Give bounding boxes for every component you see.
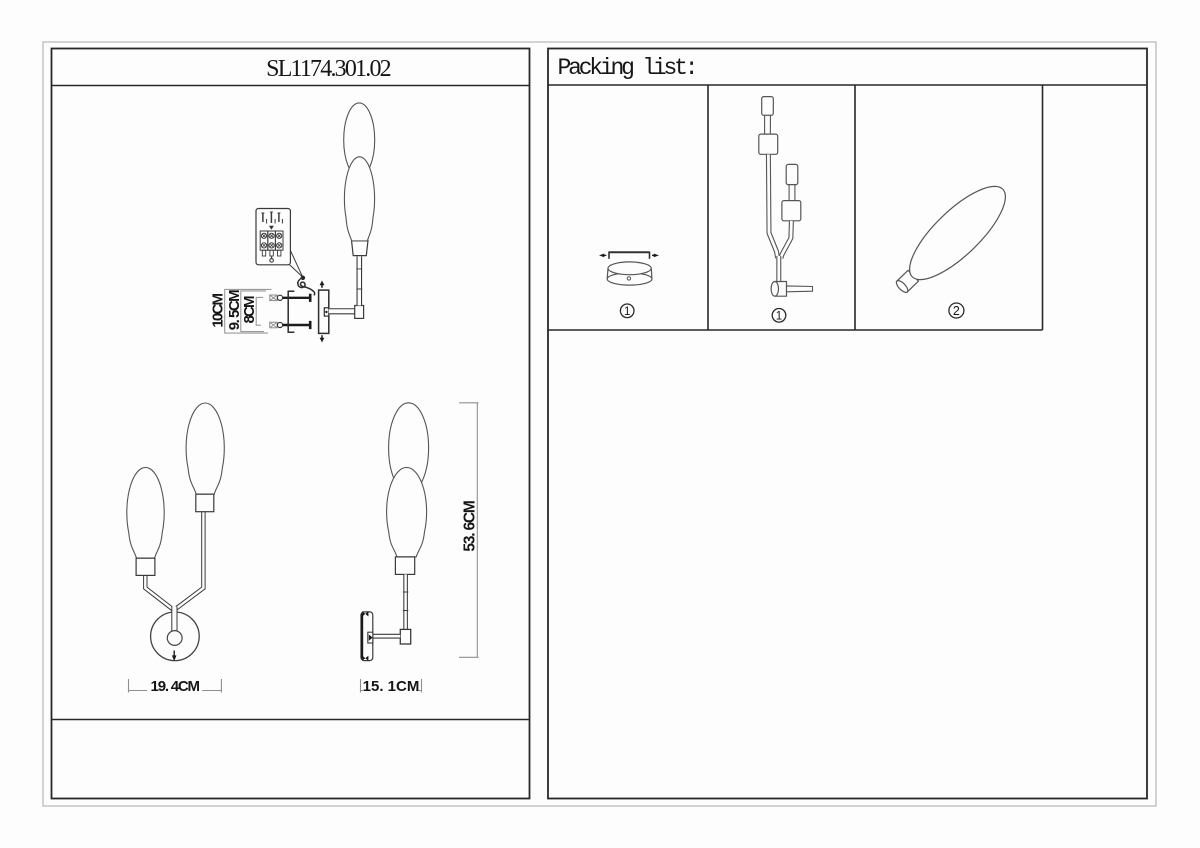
- svg-text:8CM: 8CM: [241, 296, 258, 324]
- svg-text:53. 6CM: 53. 6CM: [462, 501, 479, 551]
- svg-text:10CM: 10CM: [210, 293, 227, 327]
- svg-text:15. 1CM: 15. 1CM: [363, 678, 420, 695]
- svg-text:19. 4CM: 19. 4CM: [151, 678, 200, 695]
- svg-text:1: 1: [624, 306, 630, 318]
- svg-text:2: 2: [953, 304, 960, 318]
- svg-text:1: 1: [776, 311, 782, 323]
- svg-text:Packing list:: Packing list:: [558, 55, 696, 81]
- svg-text:SL1174.301.02: SL1174.301.02: [266, 56, 391, 82]
